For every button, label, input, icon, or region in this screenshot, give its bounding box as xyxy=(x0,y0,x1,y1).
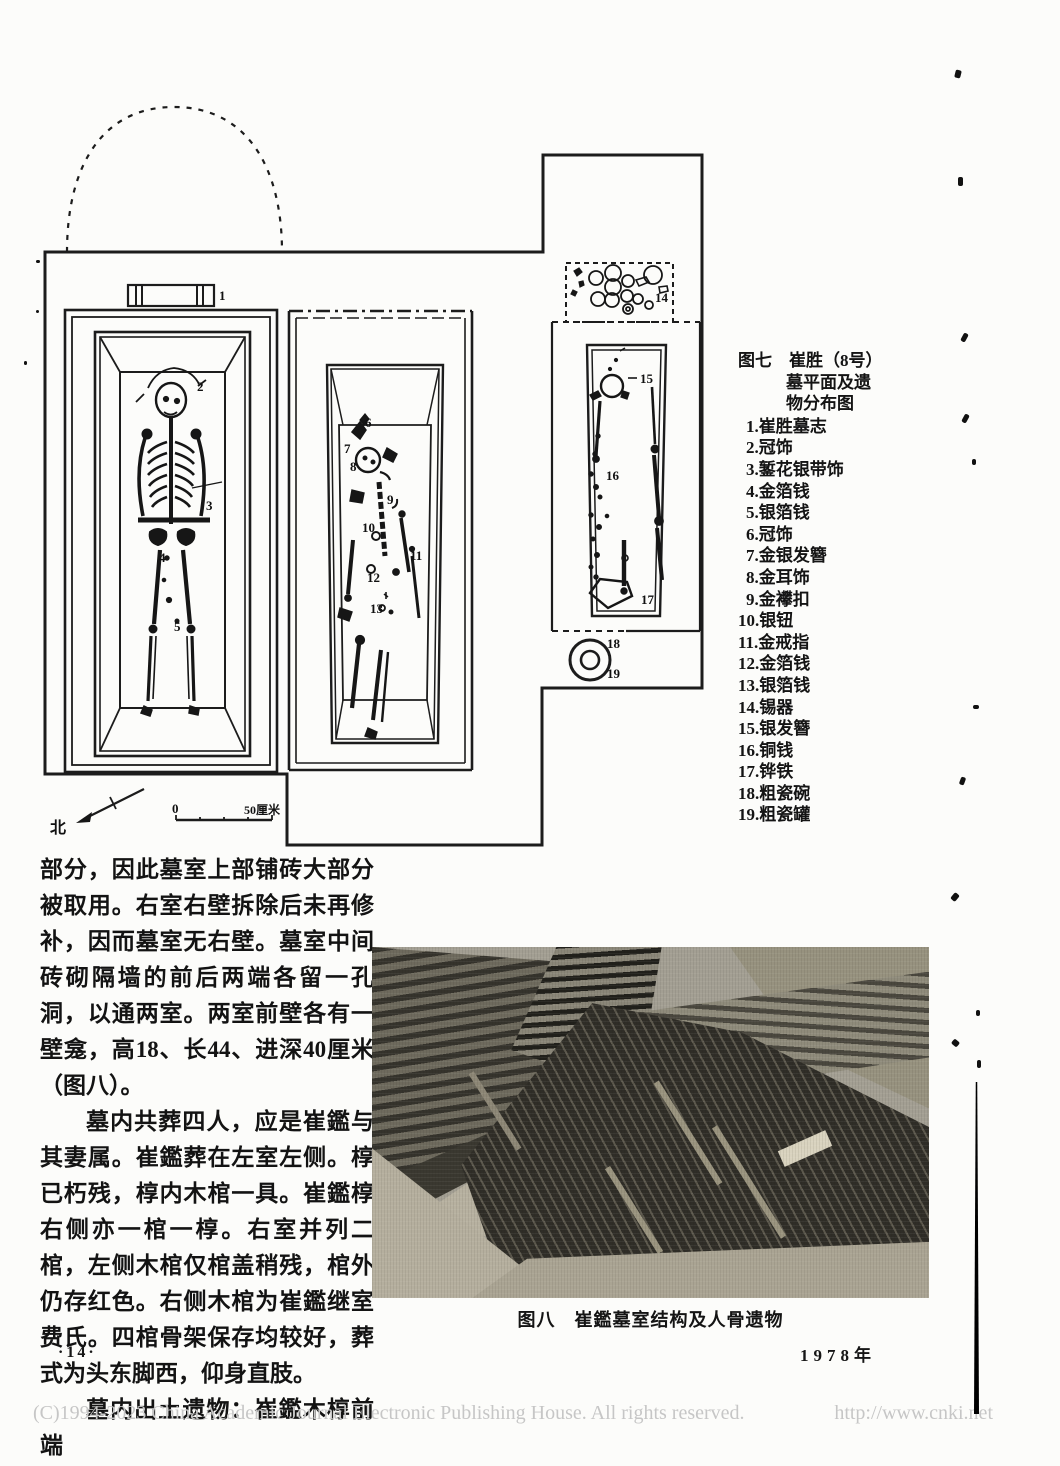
figure7-legend: 图七 崔胜（8号） 墓平面及遗 物分布图 1.崔胜墓志2.冠饰3.錾花银带饰4.… xyxy=(738,350,978,826)
copyright-text: (C)1994-2023 China Academic Journal Elec… xyxy=(33,1402,745,1425)
plan-label-17: 17 xyxy=(641,592,655,607)
plan-label-5: 5 xyxy=(174,619,181,634)
legend-item: 7.金银发簪 xyxy=(738,545,978,567)
scale-end-label: 50厘米 xyxy=(244,802,281,817)
legend-item: 17.铧铁 xyxy=(738,761,978,783)
figure7-title-line3: 物分布图 xyxy=(738,393,978,415)
legend-item: 5.银箔钱 xyxy=(738,502,978,524)
plan-label-8: 8 xyxy=(350,459,357,474)
copyright-url: http://www.cnki.net xyxy=(834,1402,993,1425)
plan-label-2: 2 xyxy=(197,379,204,394)
plan-label-14: 14 xyxy=(655,290,669,305)
plan-label-3: 3 xyxy=(206,498,213,513)
plan-label-9: 9 xyxy=(387,492,394,507)
journal-year: 1978年 xyxy=(800,1341,876,1366)
figure7-title-text: 崔胜（8号） xyxy=(789,351,883,370)
plan-label-11: 11 xyxy=(410,548,422,563)
figure7-number: 图七 xyxy=(738,351,772,370)
plan-label-16: 16 xyxy=(606,468,620,483)
figure7-title: 图七 崔胜（8号） xyxy=(738,350,978,372)
article-body: 部分，因此墓室上部铺砖大部分被取用。右室右壁拆除后未再修补，因而墓室无右壁。墓室… xyxy=(40,852,374,1464)
ink-speck xyxy=(972,459,976,465)
scale-zero-label: 0 xyxy=(172,801,179,816)
page-number: ·14· xyxy=(58,1344,97,1362)
ink-speck xyxy=(954,69,962,78)
middle-chamber xyxy=(289,311,472,770)
ink-speck xyxy=(973,705,979,709)
ink-speck xyxy=(24,361,27,365)
skeleton-1 xyxy=(136,368,222,716)
plan-label-6: 6 xyxy=(365,415,372,430)
left-coffin xyxy=(95,332,250,756)
plan-label-12: 12 xyxy=(367,570,380,585)
epitaph-stone xyxy=(128,285,214,306)
ink-speck xyxy=(950,892,960,902)
legend-item: 6.冠饰 xyxy=(738,524,978,546)
ink-speck xyxy=(960,332,969,342)
journal-page: 北 0 50厘米 12345678910111213141516171819 图… xyxy=(0,0,1060,1466)
bowl-18-19 xyxy=(570,640,610,680)
compass-north-label: 北 xyxy=(50,819,66,837)
tomb-outline xyxy=(45,155,702,845)
ink-speck xyxy=(958,177,963,186)
skeleton-3 xyxy=(589,348,664,608)
body-paragraph-1: 部分，因此墓室上部铺砖大部分被取用。右室右壁拆除后未再修补，因而墓室无右壁。墓室… xyxy=(40,852,374,1104)
ink-speck xyxy=(976,1010,980,1016)
ink-speck xyxy=(951,1038,960,1047)
plan-label-15: 15 xyxy=(640,371,654,386)
ink-speck xyxy=(36,310,39,313)
photo-halftone-grain xyxy=(372,947,929,1298)
plan-label-10: 10 xyxy=(362,520,375,535)
legend-item: 1.崔胜墓志 xyxy=(738,416,978,438)
plan-label-13: 13 xyxy=(370,601,384,616)
legend-item: 4.金箔钱 xyxy=(738,481,978,503)
legend-item: 9.金襻扣 xyxy=(738,589,978,611)
figure7-legend-list: 1.崔胜墓志2.冠饰3.錾花银带饰4.金箔钱5.银箔钱6.冠饰7.金银发簪8.金… xyxy=(738,416,978,826)
scan-edge-bar xyxy=(974,1082,979,1414)
copyright-line: (C)1994-2023 China Academic Journal Elec… xyxy=(33,1402,993,1425)
plan-label-19: 19 xyxy=(607,666,621,681)
plan-label-7: 7 xyxy=(344,441,351,456)
figure8-photo xyxy=(372,947,929,1298)
figure7-title-line2: 墓平面及遗 xyxy=(738,372,978,394)
legend-item: 8.金耳饰 xyxy=(738,567,978,589)
legend-item: 13.银箔钱 xyxy=(738,675,978,697)
plan-label-18: 18 xyxy=(607,636,621,651)
legend-item: 2.冠饰 xyxy=(738,437,978,459)
entrance-arch xyxy=(67,107,282,252)
legend-item: 16.铜钱 xyxy=(738,740,978,762)
legend-item: 18.粗瓷碗 xyxy=(738,783,978,805)
legend-item: 10.银钮 xyxy=(738,610,978,632)
figure8-caption: 图八 崔鑑墓室结构及人骨遗物 xyxy=(372,1306,929,1332)
ink-speck xyxy=(977,1060,981,1068)
legend-item: 15.银发簪 xyxy=(738,718,978,740)
figure7-tomb-plan: 北 0 50厘米 12345678910111213141516171819 xyxy=(40,88,720,858)
legend-item: 14.锡器 xyxy=(738,697,978,719)
north-arrow: 北 xyxy=(50,789,144,837)
tomb-plan-svg: 北 0 50厘米 12345678910111213141516171819 xyxy=(40,88,720,858)
ink-speck xyxy=(36,260,40,263)
legend-item: 3.錾花银带饰 xyxy=(738,459,978,481)
legend-item: 12.金箔钱 xyxy=(738,653,978,675)
plan-label-4: 4 xyxy=(159,550,166,565)
scale-bar: 0 50厘米 xyxy=(172,801,281,820)
legend-item: 11.金戒指 xyxy=(738,632,978,654)
plan-label-1: 1 xyxy=(219,288,226,303)
legend-item: 19.粗瓷罐 xyxy=(738,804,978,826)
